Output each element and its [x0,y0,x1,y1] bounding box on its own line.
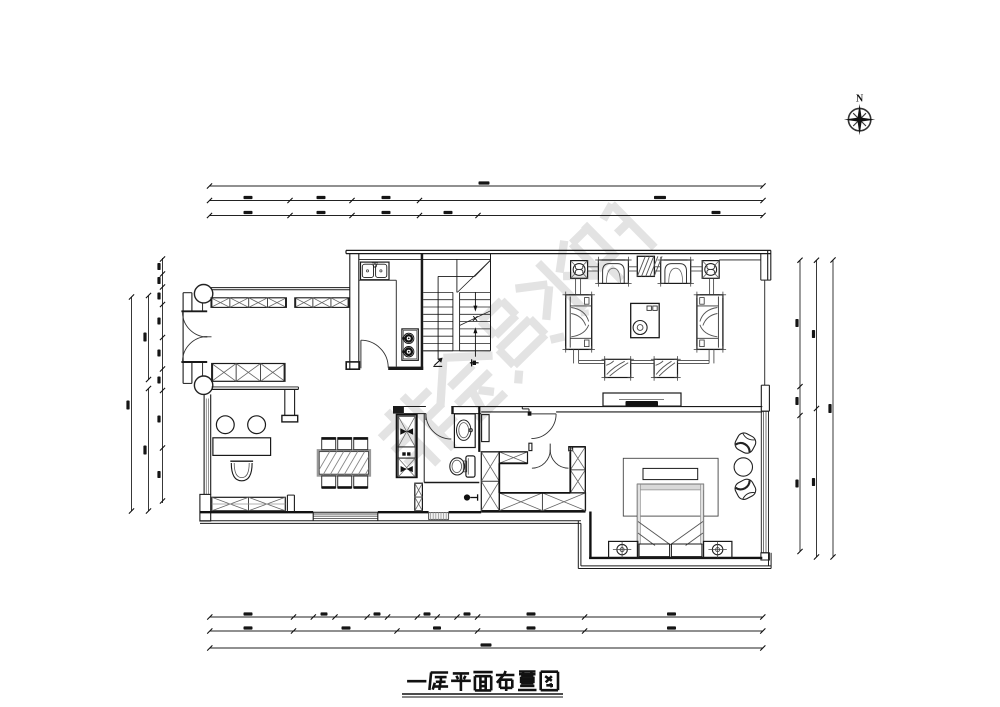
svg-text:N: N [856,94,864,105]
